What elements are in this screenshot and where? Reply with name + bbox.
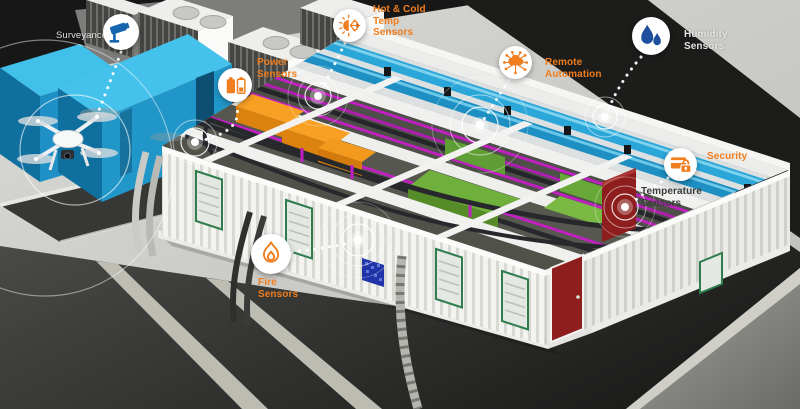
illustration-stage: Surveyance Power Sensors: [0, 0, 800, 409]
card-lock-icon: [664, 148, 697, 181]
fire-sensors-label: Fire Sensors: [258, 277, 308, 300]
cloud-network-icon: [499, 46, 532, 79]
temperature-sensors-label: Temperature Sensors: [641, 186, 729, 209]
water-drops-icon: [632, 17, 670, 55]
cctv-camera-icon: [103, 14, 139, 50]
remote-automation-label: Remote Automation: [545, 57, 625, 80]
red-door: [551, 255, 583, 342]
flame-icon: [251, 234, 291, 274]
humidity-sensors-label: Humidity Sensors: [684, 29, 740, 52]
security-label: Security: [707, 151, 767, 163]
surveillance-label: Surveyance: [56, 31, 106, 42]
power-sensors-label: Power Sensors: [257, 57, 305, 80]
hot-cold-temp-sensors-label: Hot & Cold Temp Sensors: [373, 4, 437, 39]
sun-snowflake-icon: [333, 9, 366, 42]
battery-icon: [218, 68, 252, 102]
